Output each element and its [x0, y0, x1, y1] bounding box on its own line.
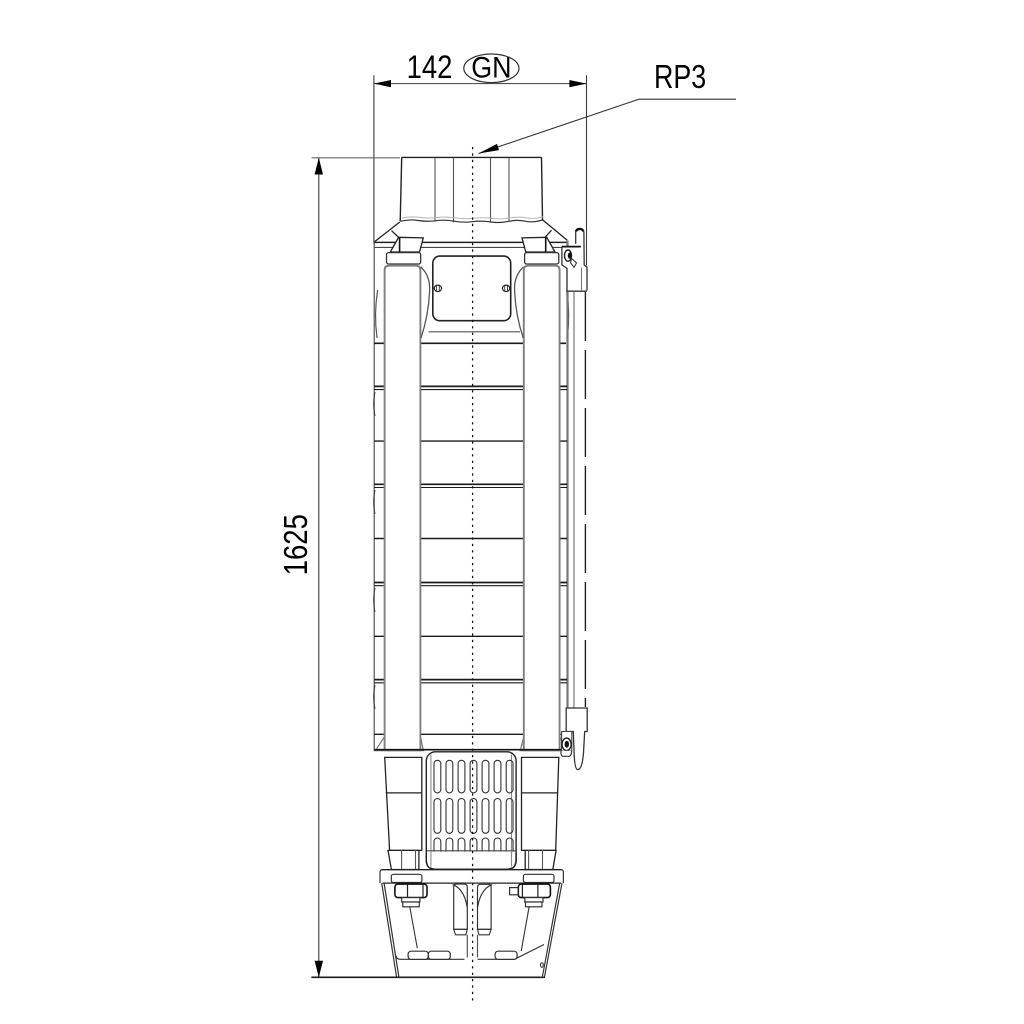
svg-text:142: 142 [407, 49, 453, 85]
svg-text:1625: 1625 [278, 514, 315, 575]
svg-text:RP3: RP3 [654, 58, 706, 95]
